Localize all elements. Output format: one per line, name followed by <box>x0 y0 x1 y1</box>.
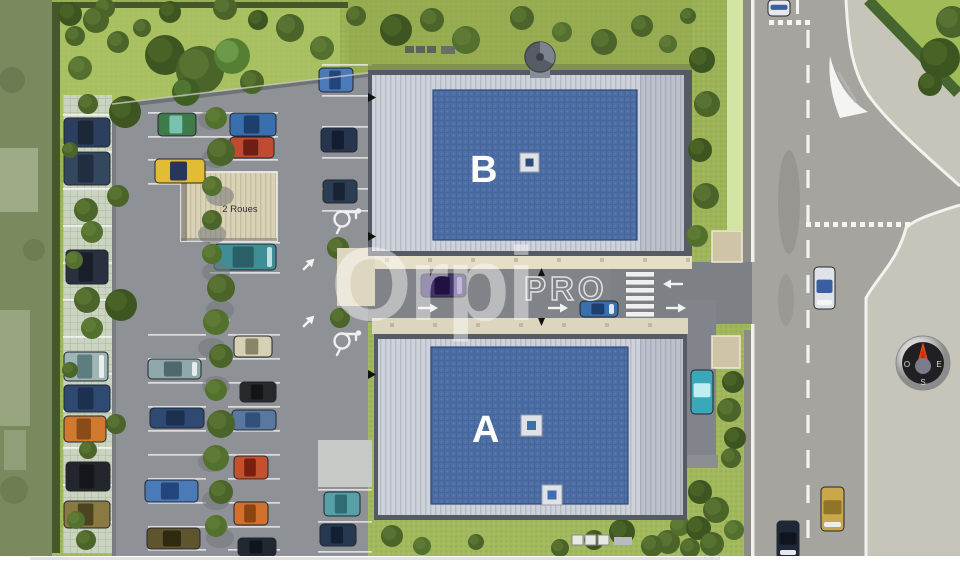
svg-text:E: E <box>936 360 941 369</box>
svg-text:N: N <box>920 350 927 360</box>
svg-text:Orpi: Orpi <box>331 227 533 343</box>
svg-text:O: O <box>904 360 910 369</box>
svg-text:A: A <box>472 409 499 451</box>
svg-text:2 Roues: 2 Roues <box>222 204 258 215</box>
svg-text:S: S <box>920 378 925 387</box>
svg-text:B: B <box>470 149 497 191</box>
svg-text:PRO: PRO <box>524 270 608 307</box>
